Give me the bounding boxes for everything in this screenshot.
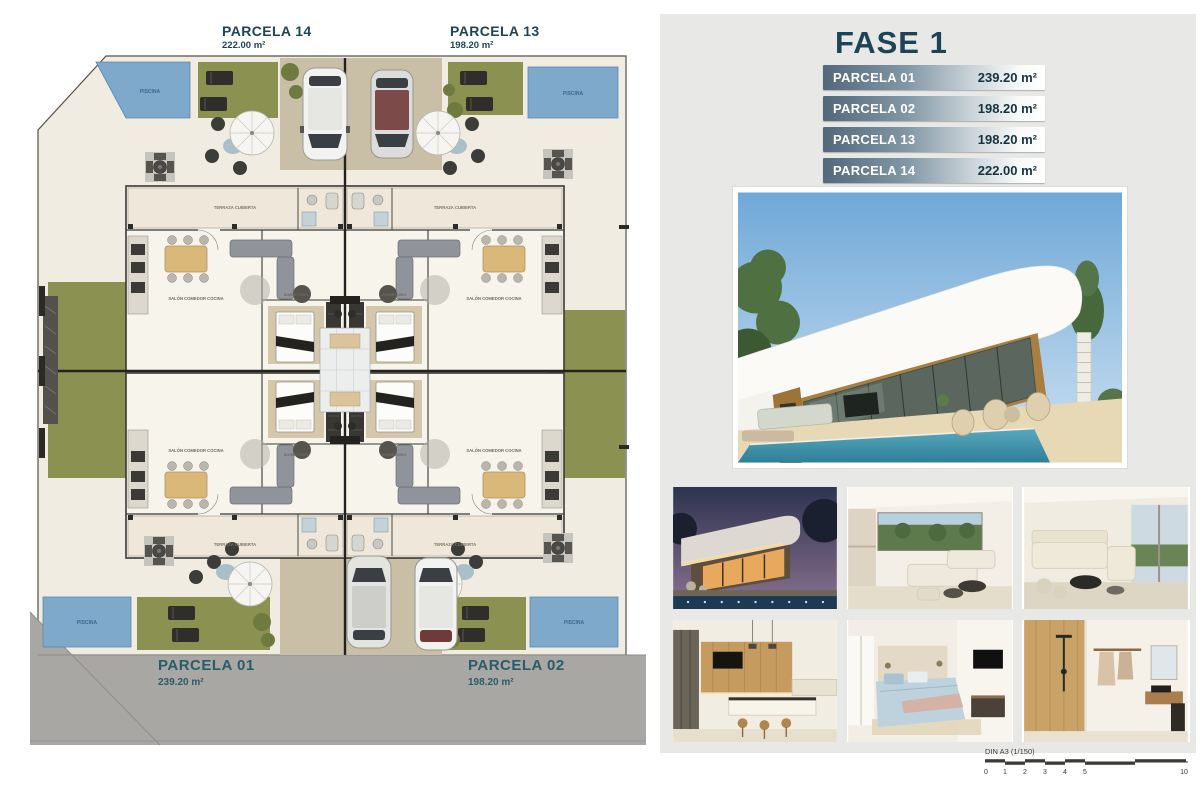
svg-text:0: 0 [984, 769, 988, 776]
table-row: PARCELA 02 198.20 m² [823, 96, 1045, 121]
table-row: PARCELA 13 198.20 m² [823, 127, 1045, 152]
svg-text:PISCINA: PISCINA [140, 89, 161, 95]
thumb-living-to-garden [847, 487, 1013, 609]
svg-text:TERRAZA CUBIERTA: TERRAZA CUBIERTA [214, 542, 256, 547]
table-row: PARCELA 14 222.00 m² [823, 158, 1045, 183]
svg-text:10: 10 [1180, 769, 1188, 776]
svg-text:DORMITORIO: DORMITORIO [382, 293, 407, 297]
row-parcel-name: PARCELA 14 [823, 163, 978, 178]
thumb-living-lounge [1022, 487, 1190, 609]
svg-text:SALÓN COMEDOR COCINA: SALÓN COMEDOR COCINA [466, 296, 521, 301]
phase-panel: FASE 1 PARCELA 01 239.20 m² PARCELA 02 1… [660, 14, 1196, 753]
parcel-01-area: 239.20 m² [158, 677, 255, 688]
parcel-02-area: 198.20 m² [468, 677, 565, 688]
svg-text:DORMITORIO: DORMITORIO [284, 293, 309, 297]
scale-label: DIN A3 (1/150) [985, 747, 1035, 756]
svg-text:1: 1 [1003, 769, 1007, 776]
svg-text:2: 2 [1023, 769, 1027, 776]
svg-text:TERRAZA CUBIERTA: TERRAZA CUBIERTA [214, 205, 256, 210]
svg-text:3: 3 [1043, 769, 1047, 776]
parcel-13-name: PARCELA 13 [450, 24, 540, 39]
parcel-14-name: PARCELA 14 [222, 24, 312, 39]
svg-text:DORMITORIO: DORMITORIO [284, 453, 309, 457]
thumb-bedroom [847, 620, 1013, 742]
svg-text:PISCINA: PISCINA [563, 91, 584, 97]
main-render-image [733, 187, 1127, 468]
row-parcel-area: 198.20 m² [978, 101, 1045, 116]
thumb-kitchen-dining [673, 620, 837, 742]
parcel-13-area: 198.20 m² [450, 41, 540, 51]
svg-text:PISCINA: PISCINA [564, 620, 585, 626]
parcel-02-name: PARCELA 02 [468, 658, 565, 675]
brochure-page: PISCINA PISCINA PISCINA PISCINA TERRAZA … [0, 0, 1200, 800]
svg-text:4: 4 [1063, 769, 1067, 776]
svg-text:TERRAZA CUBIERTA: TERRAZA CUBIERTA [434, 205, 476, 210]
svg-text:DORMITORIO: DORMITORIO [382, 453, 407, 457]
phase-title: FASE 1 [835, 25, 948, 61]
thumb-bathroom [1022, 620, 1190, 742]
svg-text:SALÓN COMEDOR COCINA: SALÓN COMEDOR COCINA [168, 296, 223, 301]
row-parcel-area: 222.00 m² [978, 163, 1045, 178]
row-parcel-area: 198.20 m² [978, 132, 1045, 147]
row-parcel-name: PARCELA 02 [823, 101, 978, 116]
thumb-night-exterior [673, 487, 837, 609]
row-parcel-area: 239.20 m² [978, 70, 1045, 85]
svg-text:SALÓN COMEDOR COCINA: SALÓN COMEDOR COCINA [168, 448, 223, 453]
row-parcel-name: PARCELA 01 [823, 70, 978, 85]
parcel-14-area: 222.00 m² [222, 41, 312, 51]
table-row: PARCELA 01 239.20 m² [823, 65, 1045, 90]
parcel-13-label: PARCELA 13 198.20 m² [450, 24, 540, 52]
svg-text:SALÓN COMEDOR COCINA: SALÓN COMEDOR COCINA [466, 448, 521, 453]
svg-text:5: 5 [1083, 769, 1087, 776]
parcel-02-label: PARCELA 02 198.20 m² [468, 658, 565, 688]
parcel-01-name: PARCELA 01 [158, 658, 255, 675]
svg-text:PISCINA: PISCINA [77, 620, 98, 626]
scale-bar: DIN A3 (1/150) 0 1 2 3 4 5 10 [983, 745, 1195, 781]
parcel-14-label: PARCELA 14 222.00 m² [222, 24, 312, 52]
row-parcel-name: PARCELA 13 [823, 132, 978, 147]
svg-text:TERRAZA CUBIERTA: TERRAZA CUBIERTA [434, 542, 476, 547]
parcel-01-label: PARCELA 01 239.20 m² [158, 658, 255, 688]
